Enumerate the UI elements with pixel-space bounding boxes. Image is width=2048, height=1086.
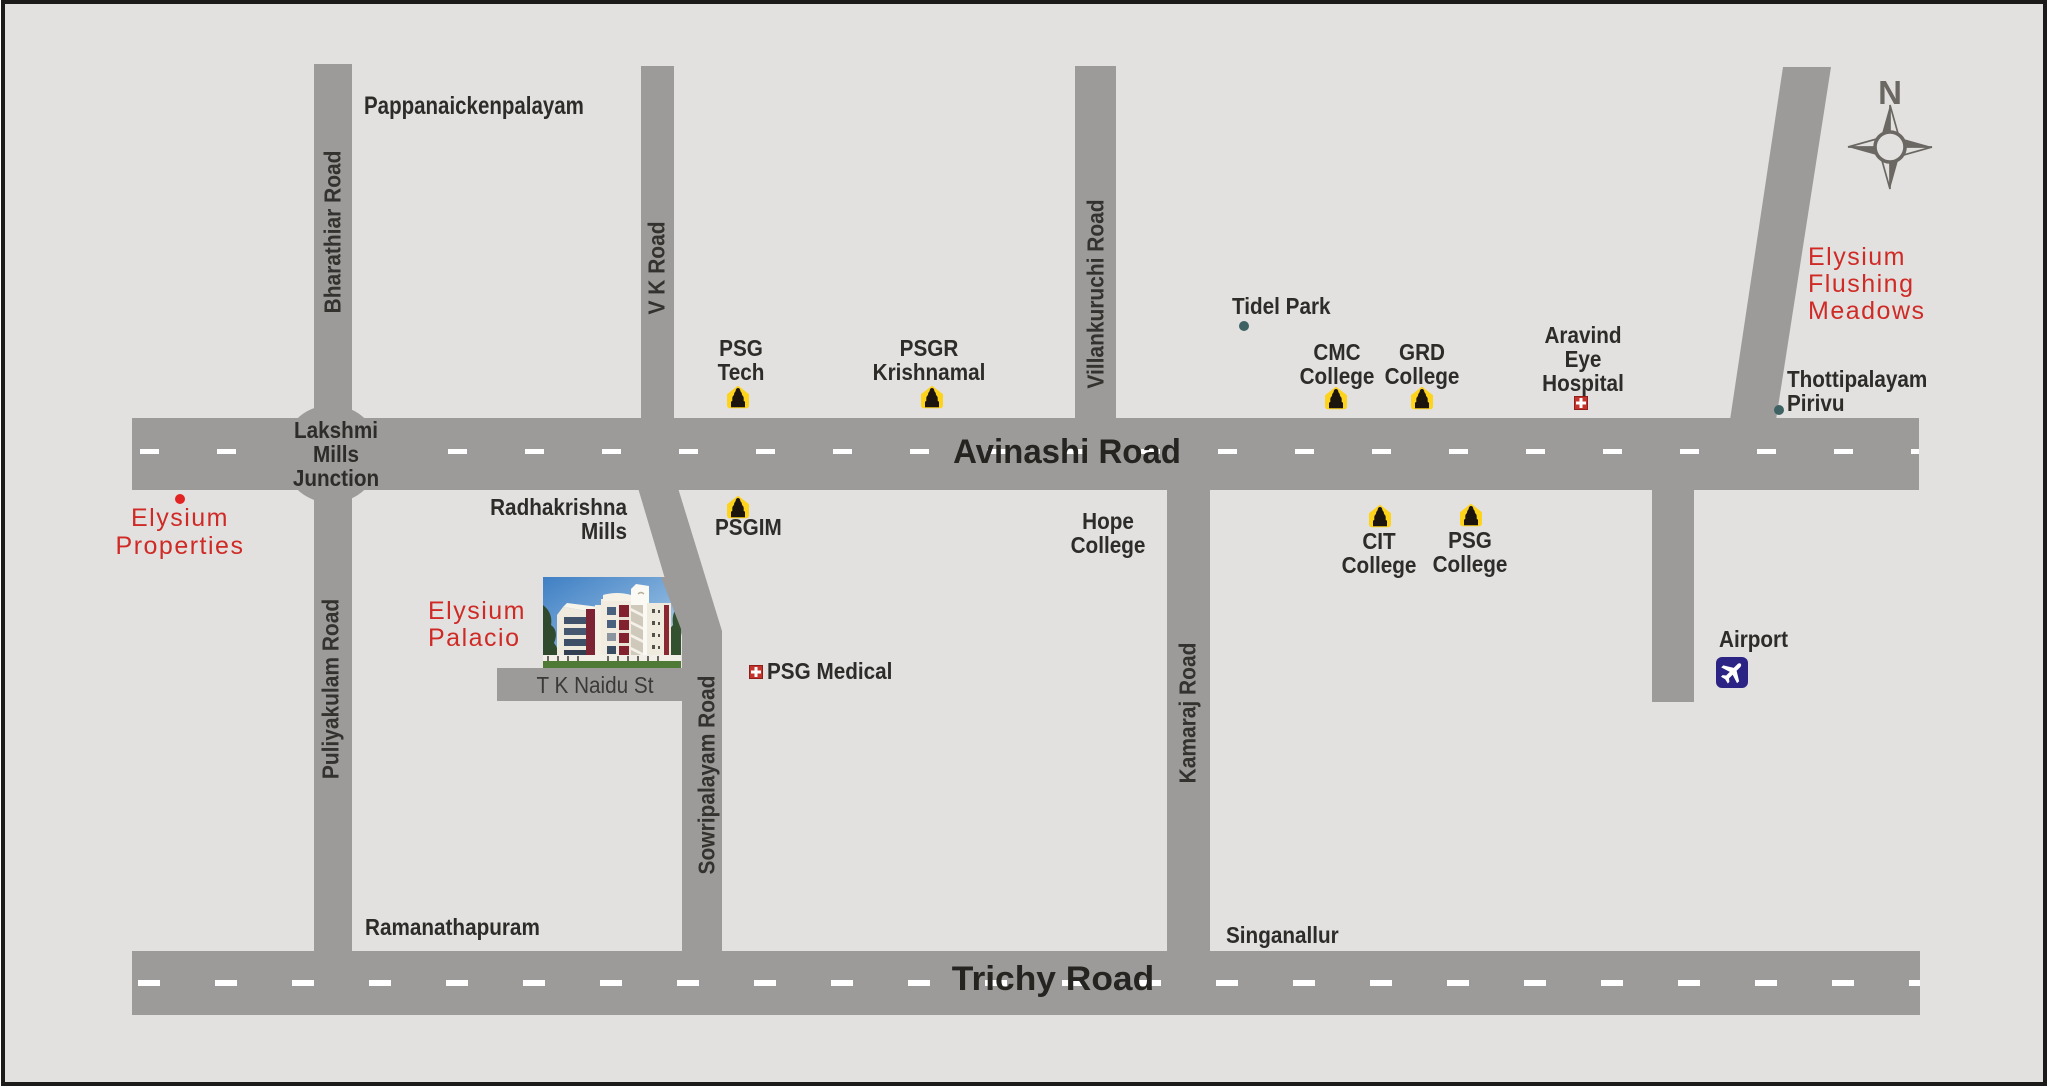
svg-text:N: N <box>1878 74 1902 111</box>
